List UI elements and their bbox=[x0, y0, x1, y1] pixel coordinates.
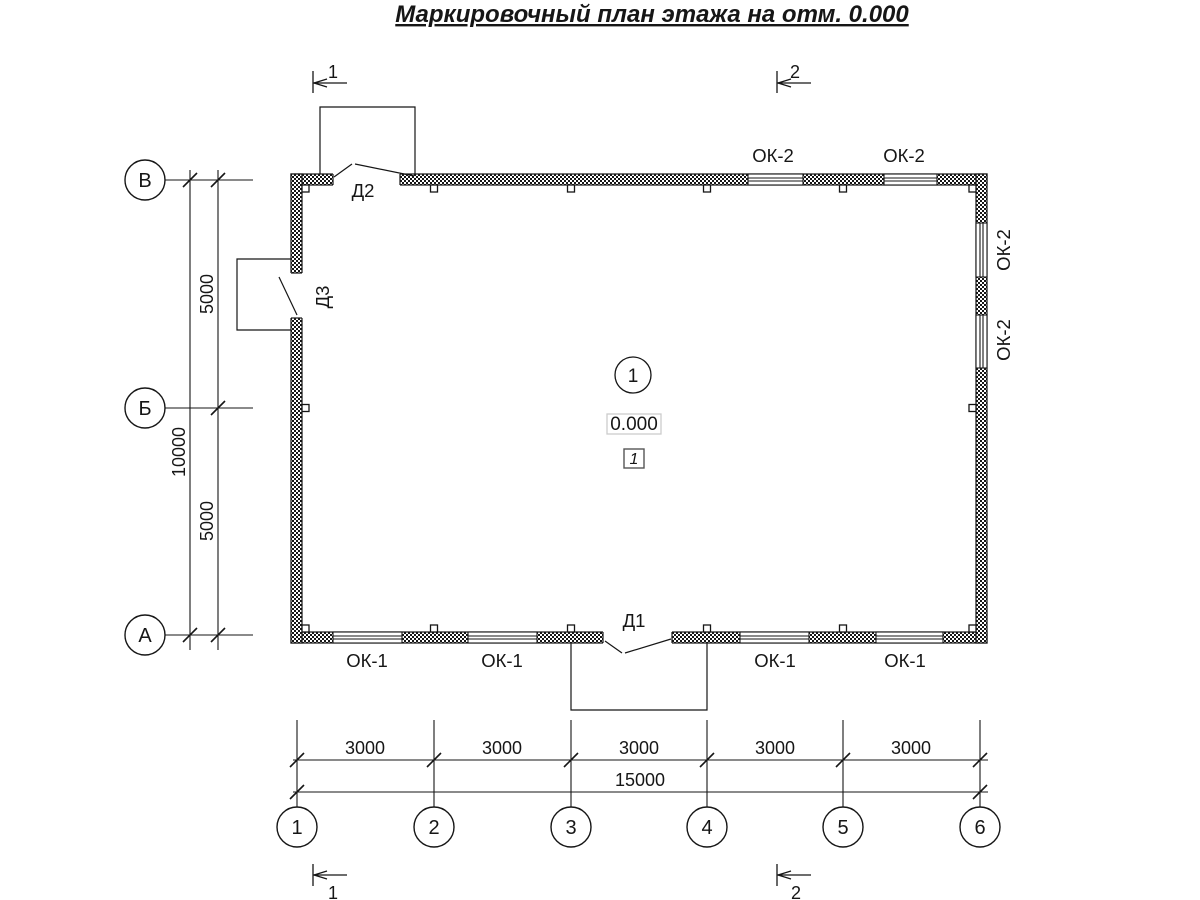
label-ok2: ОК-2 bbox=[752, 145, 794, 166]
window-ok2-top-2 bbox=[884, 174, 937, 185]
door-d1-porch bbox=[571, 643, 707, 710]
room-number: 1 bbox=[628, 366, 639, 387]
label-ok1: ОК-1 bbox=[481, 650, 523, 671]
window-ok2-top-1 bbox=[748, 174, 803, 185]
col-axis-circles bbox=[277, 807, 1000, 847]
axis-col-1: 1 bbox=[291, 817, 302, 839]
window-ok1-4 bbox=[876, 632, 943, 643]
grid-extension-lines bbox=[297, 720, 980, 807]
windows bbox=[333, 174, 987, 643]
zone-number: 1 bbox=[630, 451, 639, 468]
axis-row-v: В bbox=[138, 170, 151, 192]
label-ok2: ОК-2 bbox=[993, 319, 1014, 361]
axis-col-3: 3 bbox=[565, 817, 576, 839]
floor-plan-page: Маркировочный план этажа на отм. 0.000 bbox=[0, 0, 1200, 900]
bottom-dimensions: 3000 3000 3000 3000 3000 15000 1 2 3 4 5… bbox=[277, 720, 1000, 847]
axis-row-a: А bbox=[138, 625, 152, 647]
door-d3-porch bbox=[237, 259, 291, 330]
door-d2-porch bbox=[320, 107, 415, 174]
floor-plan-drawing: Маркировочный план этажа на отм. 0.000 bbox=[0, 0, 1200, 900]
dim-3000: 3000 bbox=[755, 738, 795, 758]
axis-col-5: 5 bbox=[837, 817, 848, 839]
label-d3: Д3 bbox=[312, 286, 333, 309]
drawing-title: Маркировочный план этажа на отм. 0.000 bbox=[395, 1, 909, 28]
opening-labels: ОК-1 ОК-1 ОК-1 ОК-1 ОК-2 ОК-2 ОК-2 ОК-2 … bbox=[312, 145, 1014, 671]
label-ok1: ОК-1 bbox=[754, 650, 796, 671]
section-marks bbox=[313, 71, 811, 886]
window-ok1-2 bbox=[468, 632, 537, 643]
section-label-1-top: 1 bbox=[328, 62, 338, 82]
label-ok1: ОК-1 bbox=[884, 650, 926, 671]
label-d2: Д2 bbox=[352, 180, 375, 201]
label-ok1: ОК-1 bbox=[346, 650, 388, 671]
section-label-1-bottom: 1 bbox=[328, 883, 338, 900]
section-label-2-top: 2 bbox=[790, 62, 800, 82]
dim-15000-total: 15000 bbox=[615, 770, 665, 790]
window-ok1-1 bbox=[333, 632, 402, 643]
label-d1: Д1 bbox=[623, 610, 646, 631]
window-ok2-right-2 bbox=[976, 315, 987, 368]
window-ok2-right-1 bbox=[976, 223, 987, 277]
axis-row-b: Б bbox=[138, 398, 151, 420]
exterior-walls bbox=[291, 174, 987, 643]
label-ok2: ОК-2 bbox=[883, 145, 925, 166]
dim-3000: 3000 bbox=[482, 738, 522, 758]
section-label-2-bottom: 2 bbox=[791, 883, 801, 900]
label-ok2: ОК-2 bbox=[993, 229, 1014, 271]
left-dimensions: 5000 5000 10000 В Б А bbox=[125, 160, 253, 655]
dim-3000: 3000 bbox=[345, 738, 385, 758]
wall-left bbox=[291, 174, 302, 643]
dim-3000: 3000 bbox=[891, 738, 931, 758]
door-d3-opening bbox=[290, 273, 304, 318]
door-openings bbox=[290, 173, 673, 645]
dim-5000-lower: 5000 bbox=[197, 501, 217, 541]
axis-col-6: 6 bbox=[974, 817, 985, 839]
dim-10000-total: 10000 bbox=[169, 427, 189, 477]
dim-5000-upper: 5000 bbox=[197, 274, 217, 314]
dim-3000: 3000 bbox=[619, 738, 659, 758]
room-markers: 1 0.000 1 bbox=[607, 357, 661, 468]
window-ok1-3 bbox=[740, 632, 809, 643]
elevation-value: 0.000 bbox=[610, 414, 658, 435]
axis-col-2: 2 bbox=[428, 817, 439, 839]
pilaster-marks bbox=[302, 185, 976, 632]
axis-col-4: 4 bbox=[701, 817, 712, 839]
